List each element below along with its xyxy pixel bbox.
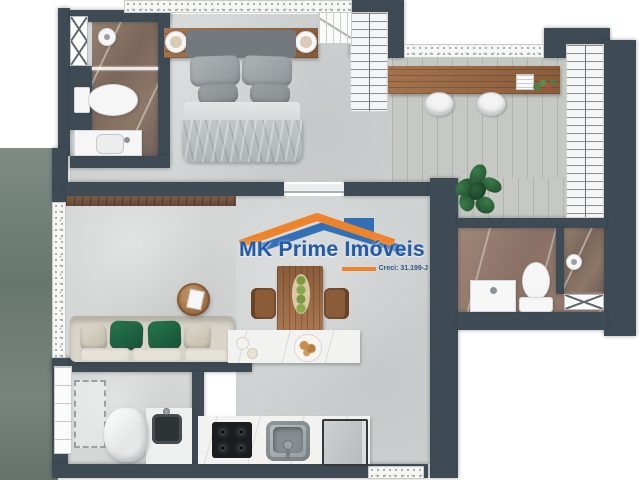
wall xyxy=(70,156,170,168)
watermark-brand: MK Prime Imóveis xyxy=(222,238,442,262)
flowers xyxy=(532,76,556,94)
nightstand-tray-inner xyxy=(300,36,312,48)
watermark-sub: Creci: 31.199-J xyxy=(342,265,428,272)
bowl xyxy=(247,348,258,359)
sink-vanity xyxy=(470,280,516,312)
faucet xyxy=(490,287,497,294)
floor-plan: MK Prime Imóveis Creci: 31.199-J xyxy=(0,0,640,480)
bed-pillow xyxy=(189,55,240,87)
watermark-creci: Creci: 31.199-J xyxy=(379,265,428,272)
faucet xyxy=(163,408,170,415)
laundry-basket xyxy=(104,408,148,462)
toilet xyxy=(522,262,550,300)
wall xyxy=(604,40,636,336)
faucet xyxy=(124,137,130,143)
shelving xyxy=(54,366,72,454)
tv-panel xyxy=(66,196,236,206)
bed-pillow xyxy=(241,55,292,87)
watermark-underline xyxy=(342,267,376,271)
shelf-unit xyxy=(318,12,352,44)
desk-chair xyxy=(424,92,454,116)
sofa-seat xyxy=(184,348,228,362)
desk-chair xyxy=(476,92,506,116)
sofa-seat xyxy=(80,348,130,362)
wall xyxy=(556,228,564,294)
towel-rack xyxy=(70,16,88,66)
dining-chair xyxy=(324,288,349,319)
faucet xyxy=(283,440,293,450)
sofa-seat xyxy=(132,348,182,362)
wall xyxy=(458,312,606,330)
shower-head-center xyxy=(104,34,110,40)
sink-bowl xyxy=(96,134,124,154)
laundry-sink xyxy=(152,414,182,444)
wall xyxy=(58,8,70,156)
sofa-pillow-green xyxy=(110,320,144,350)
window-glass-left xyxy=(52,202,66,358)
sliding-door xyxy=(284,184,344,193)
wall xyxy=(66,182,284,196)
dining-chair xyxy=(251,288,276,319)
closet-hangers xyxy=(350,12,388,112)
potted-plant xyxy=(450,162,506,220)
sofa-pillow-green xyxy=(148,320,182,350)
bed-headboard-cushion xyxy=(186,30,296,58)
toilet-tank xyxy=(519,297,553,312)
washer-space xyxy=(74,380,106,448)
cooktop xyxy=(212,422,252,458)
watermark-logo: MK Prime Imóveis Creci: 31.199-J xyxy=(222,210,442,282)
glass-divider xyxy=(92,67,158,70)
wall xyxy=(344,182,430,196)
shower-head-center xyxy=(571,259,577,265)
exterior-terrace-left xyxy=(0,148,58,480)
wardrobe-hangers xyxy=(566,44,604,218)
pastry-plate xyxy=(294,334,322,362)
window-glass-bottom xyxy=(368,466,424,479)
bed-duvet xyxy=(182,120,302,162)
window-glass-office xyxy=(404,44,544,58)
bowl xyxy=(236,337,249,350)
toilet xyxy=(88,84,138,116)
towel-rack xyxy=(564,294,604,310)
nightstand-tray-inner xyxy=(170,36,182,48)
fridge xyxy=(322,419,368,466)
